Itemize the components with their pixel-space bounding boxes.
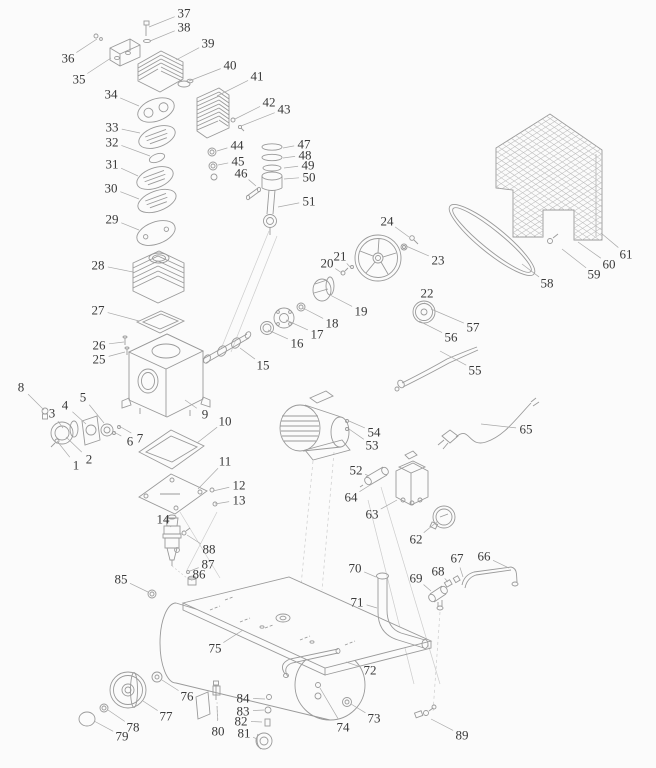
mesh-grid-line [398,130,612,278]
leader-line-10 [197,427,217,443]
piston [262,172,282,191]
bearing [261,322,274,335]
mesh-grid-line [499,148,656,287]
part-label-73: 73 [368,711,381,726]
connecting-rod [264,190,277,235]
drain-cock [343,698,352,707]
leader-line-44 [217,148,227,151]
part-label-69: 69 [410,571,423,586]
drain-fitting [414,705,436,718]
filter-bolt [182,528,190,535]
shaft-washer [297,303,305,311]
leader-line-32 [121,145,150,156]
part-label-42: 42 [263,95,276,110]
mesh-grid-line [371,59,591,198]
mesh-grid-line [375,62,595,201]
part-label-44: 44 [231,138,245,153]
part-label-56: 56 [445,330,459,345]
leader-line-64 [359,482,375,492]
part-label-16: 16 [291,336,305,351]
head-cover [138,51,183,92]
part-label-57: 57 [467,320,481,335]
part-label-36: 36 [62,51,76,66]
part-label-70: 70 [349,561,362,576]
part-label-79: 79 [116,729,129,744]
leader-line-27 [108,313,139,321]
drive-belt [442,196,542,284]
motor [280,391,350,460]
valve-plate-mid [134,162,177,194]
valve-plate-upper [136,121,179,153]
leader-line-34 [120,98,139,106]
leader-line-35 [87,58,111,74]
tank-platform [183,577,431,675]
part-label-9: 9 [202,407,209,422]
wheel-cap [79,712,95,726]
part-label-46: 46 [235,166,249,181]
leader-line-47 [283,146,294,148]
part-label-25: 25 [93,352,106,367]
leader-line-38 [150,31,175,41]
leader-line-29 [121,223,139,230]
flywheel-washer [401,244,407,250]
mesh-grid-line [461,121,656,260]
part-label-18: 18 [326,316,339,331]
part-label-63: 63 [366,507,379,522]
mesh-grid-line [465,124,656,263]
leader-line-69 [424,585,431,591]
unloader-tube [395,347,478,391]
mesh-grid-line [388,71,608,210]
part-label-20: 20 [321,256,334,271]
part-label-55: 55 [469,363,482,378]
mesh-grid-line [442,102,656,250]
leader-line-80 [217,706,218,721]
part-label-54: 54 [368,425,382,440]
leader-line-31 [121,168,138,176]
part-label-58: 58 [541,276,554,291]
mesh-grid-line [464,88,656,236]
oil-plug [42,408,48,419]
part-label-8: 8 [18,380,25,395]
part-label-41: 41 [251,69,264,84]
pressure-switch [396,451,428,505]
part-label-24: 24 [381,214,395,229]
leader-line-79 [94,721,113,731]
leader-line-61 [601,233,618,248]
leader-line-56 [419,321,442,333]
part-label-14: 14 [157,512,171,527]
leader-line-46 [249,180,256,186]
part-label-67: 67 [451,551,465,566]
leader-line-12 [213,487,229,491]
part-label-66: 66 [478,549,492,564]
leader-line-60 [578,242,601,258]
mesh-grid-line [469,85,656,233]
part-label-61: 61 [620,247,633,262]
grommet [148,590,156,598]
drawing-layer [42,21,656,749]
mesh-grid-line [372,146,586,294]
part-label-76: 76 [181,689,195,704]
leader-line-24 [395,227,409,237]
part-label-89: 89 [456,728,469,743]
part-label-72: 72 [364,663,377,678]
mesh-grid-line [362,53,582,192]
tank-plug [316,683,321,688]
wheel-nut [100,704,108,712]
part-label-50: 50 [303,170,316,185]
part-label-21: 21 [334,249,347,264]
part-label-34: 34 [105,87,119,102]
leader-line-51 [278,203,299,207]
mesh-grid-line [521,52,656,200]
part-label-32: 32 [106,135,119,150]
head-screws [231,118,244,131]
pressure-gauge [430,506,455,529]
mesh-grid-line [447,99,656,247]
mesh-grid-line [381,141,595,289]
leader-line-40 [189,69,221,81]
base-plate [139,474,207,514]
part-label-22: 22 [421,286,434,301]
valve-box [110,39,140,66]
leader-line-84 [253,698,265,699]
head-nuts [208,148,217,180]
base-gasket [139,430,204,469]
mesh-grid-line [486,74,656,222]
motor-pulley [413,301,435,323]
part-label-13: 13 [233,493,246,508]
leader-line-83 [253,710,264,711]
part-label-37: 37 [178,6,192,21]
cylinder-head [197,88,229,138]
head-bolt [144,21,151,43]
part-label-84: 84 [237,691,251,706]
part-label-52: 52 [350,463,363,478]
guard-bolt [548,234,559,244]
part-label-19: 19 [355,304,368,319]
part-label-62: 62 [410,532,423,547]
leader-line-2 [66,437,82,452]
exploded-parts-diagram: 1234567891011121314151617181920212223242… [0,0,656,768]
leader-line-30 [120,192,139,199]
leader-line-54 [349,421,365,428]
leader-line-4 [72,412,86,424]
part-label-3: 3 [49,406,56,421]
part-label-85: 85 [115,572,128,587]
part-label-59: 59 [588,267,601,282]
leader-line-7 [119,426,131,433]
leader-line-41 [217,80,248,96]
cylinder-gasket [133,216,178,250]
part-label-10: 10 [219,414,232,429]
check-valve [360,466,390,487]
leader-line-20 [335,269,342,273]
part-label-29: 29 [106,212,119,227]
crankshaft [202,331,252,365]
part-label-35: 35 [73,72,86,87]
flywheel [355,235,401,281]
part-label-88: 88 [203,542,216,557]
leader-line-48 [283,156,295,158]
cylinder [133,251,184,303]
mesh-grid-line [366,56,586,195]
part-label-26: 26 [93,338,107,353]
part-label-51: 51 [303,194,316,209]
crankcase-gasket [137,311,184,333]
leader-line-85 [130,583,148,592]
part-label-31: 31 [106,157,119,172]
part-label-71: 71 [351,595,364,610]
leader-line-57 [431,309,464,323]
leader-line-21 [347,263,351,268]
part-label-80: 80 [212,724,225,739]
part-label-4: 4 [62,398,69,413]
leader-line-50 [284,178,299,179]
mesh-grid-line [384,68,604,207]
parts-diagram-page: 1234567891011121314151617181920212223242… [0,0,656,768]
mesh-grid-line [495,145,656,284]
axle-bolt [214,681,219,700]
part-label-23: 23 [432,253,445,268]
mesh-grid-line [455,94,656,242]
leader-line-59 [562,249,586,268]
part-label-5: 5 [80,390,87,405]
leader-line-1 [57,441,70,457]
part-label-6: 6 [127,434,134,449]
mesh-grid-line [439,107,656,246]
pipe-fitting [427,585,449,610]
part-label-60: 60 [603,257,616,272]
part-label-2: 2 [86,452,93,467]
leader-line-5 [89,405,104,423]
side-plate [82,416,100,445]
mesh-grid-line [448,112,656,251]
part-label-74: 74 [337,720,351,735]
part-label-17: 17 [311,327,325,342]
leader-line-39 [176,48,199,60]
leader-line-42 [235,106,260,119]
part-label-28: 28 [92,258,105,273]
leader-line-23 [406,246,429,256]
part-label-30: 30 [105,181,118,196]
leader-line-74 [320,688,338,718]
valve-plate-lower [135,185,179,217]
mesh-grid-line [379,65,599,204]
leader-line-76 [162,680,179,691]
retainer-clip [94,34,102,40]
wheel [110,672,146,708]
breather-assembly [51,421,78,447]
leader-line-37 [149,17,175,27]
leader-line-11 [198,468,218,489]
part-label-33: 33 [106,120,119,135]
part-label-12: 12 [233,478,246,493]
mesh-grid-line [452,115,656,254]
part-label-1: 1 [73,458,80,473]
leader-line-8 [28,394,44,410]
part-label-7: 7 [137,431,144,446]
head-gasket [134,93,177,127]
leader-line-89 [431,719,453,730]
crankcase [122,334,210,417]
leader-line-15 [240,348,255,359]
part-label-27: 27 [92,303,106,318]
part-label-83: 83 [237,704,250,719]
mesh-grid-line [392,74,612,213]
leader-line-28 [108,267,133,272]
coupler [313,277,334,301]
part-label-87: 87 [202,557,216,572]
leader-line-25 [109,352,125,356]
leader-line-26 [109,342,124,344]
leader-line-43 [241,113,275,126]
mesh-grid-line [451,96,656,244]
part-label-11: 11 [219,454,232,469]
mesh-grid-line [473,83,656,231]
piston-rings [262,144,282,171]
part-label-77: 77 [160,709,174,724]
leader-line-67 [460,568,463,577]
flywheel-bolt [410,236,418,244]
leader-line-88 [187,535,201,544]
leader-line-63 [381,500,397,509]
leader-line-16 [268,330,288,339]
leader-line-33 [122,129,140,133]
leader-line-62 [424,521,438,533]
mesh-grid-line [456,118,656,257]
wrist-pin [246,187,260,199]
leader-line-18 [303,308,323,318]
discharge-pipe [444,567,518,588]
reed-strip [148,152,166,165]
part-label-38: 38 [178,20,191,35]
leader-line-49 [284,166,298,168]
part-label-64: 64 [345,490,359,505]
leader-line-53 [349,429,364,439]
coupler-bolts [341,266,354,276]
leader-line-78 [108,710,125,721]
leader-line-36 [76,39,97,53]
bearing-flange [274,308,294,328]
mesh-grid-line [385,138,599,286]
part-label-40: 40 [224,58,237,73]
part-label-43: 43 [278,102,291,117]
leader-line-82 [251,721,262,722]
leader-line-77 [143,701,158,711]
leader-line-19 [330,295,352,306]
part-label-39: 39 [202,36,215,51]
part-label-65: 65 [520,422,533,437]
leader-line-70 [364,572,376,577]
part-label-15: 15 [257,358,270,373]
part-label-53: 53 [366,438,379,453]
leader-line-71 [367,605,377,608]
leader-line-66 [493,560,509,568]
wheel-washer [152,672,162,682]
part-label-75: 75 [209,641,222,656]
leader-line-45 [218,163,228,165]
part-label-68: 68 [432,564,445,579]
